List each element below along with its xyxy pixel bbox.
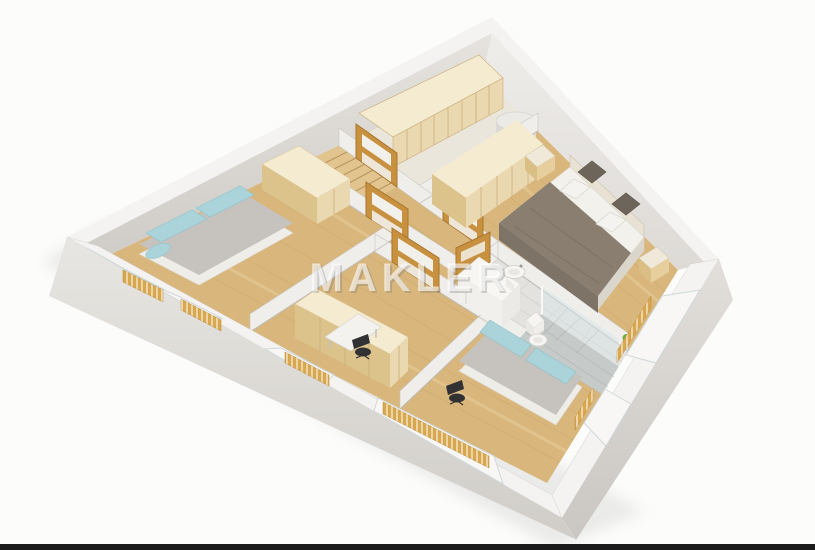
- watermark: MAKLER MAKLER: [309, 256, 512, 302]
- bottom-bar: [0, 544, 815, 550]
- watermark-text: MAKLER: [309, 256, 510, 300]
- floor-plan-3d-render: ?: [0, 0, 815, 550]
- floor-plan-canvas: ?: [0, 0, 815, 550]
